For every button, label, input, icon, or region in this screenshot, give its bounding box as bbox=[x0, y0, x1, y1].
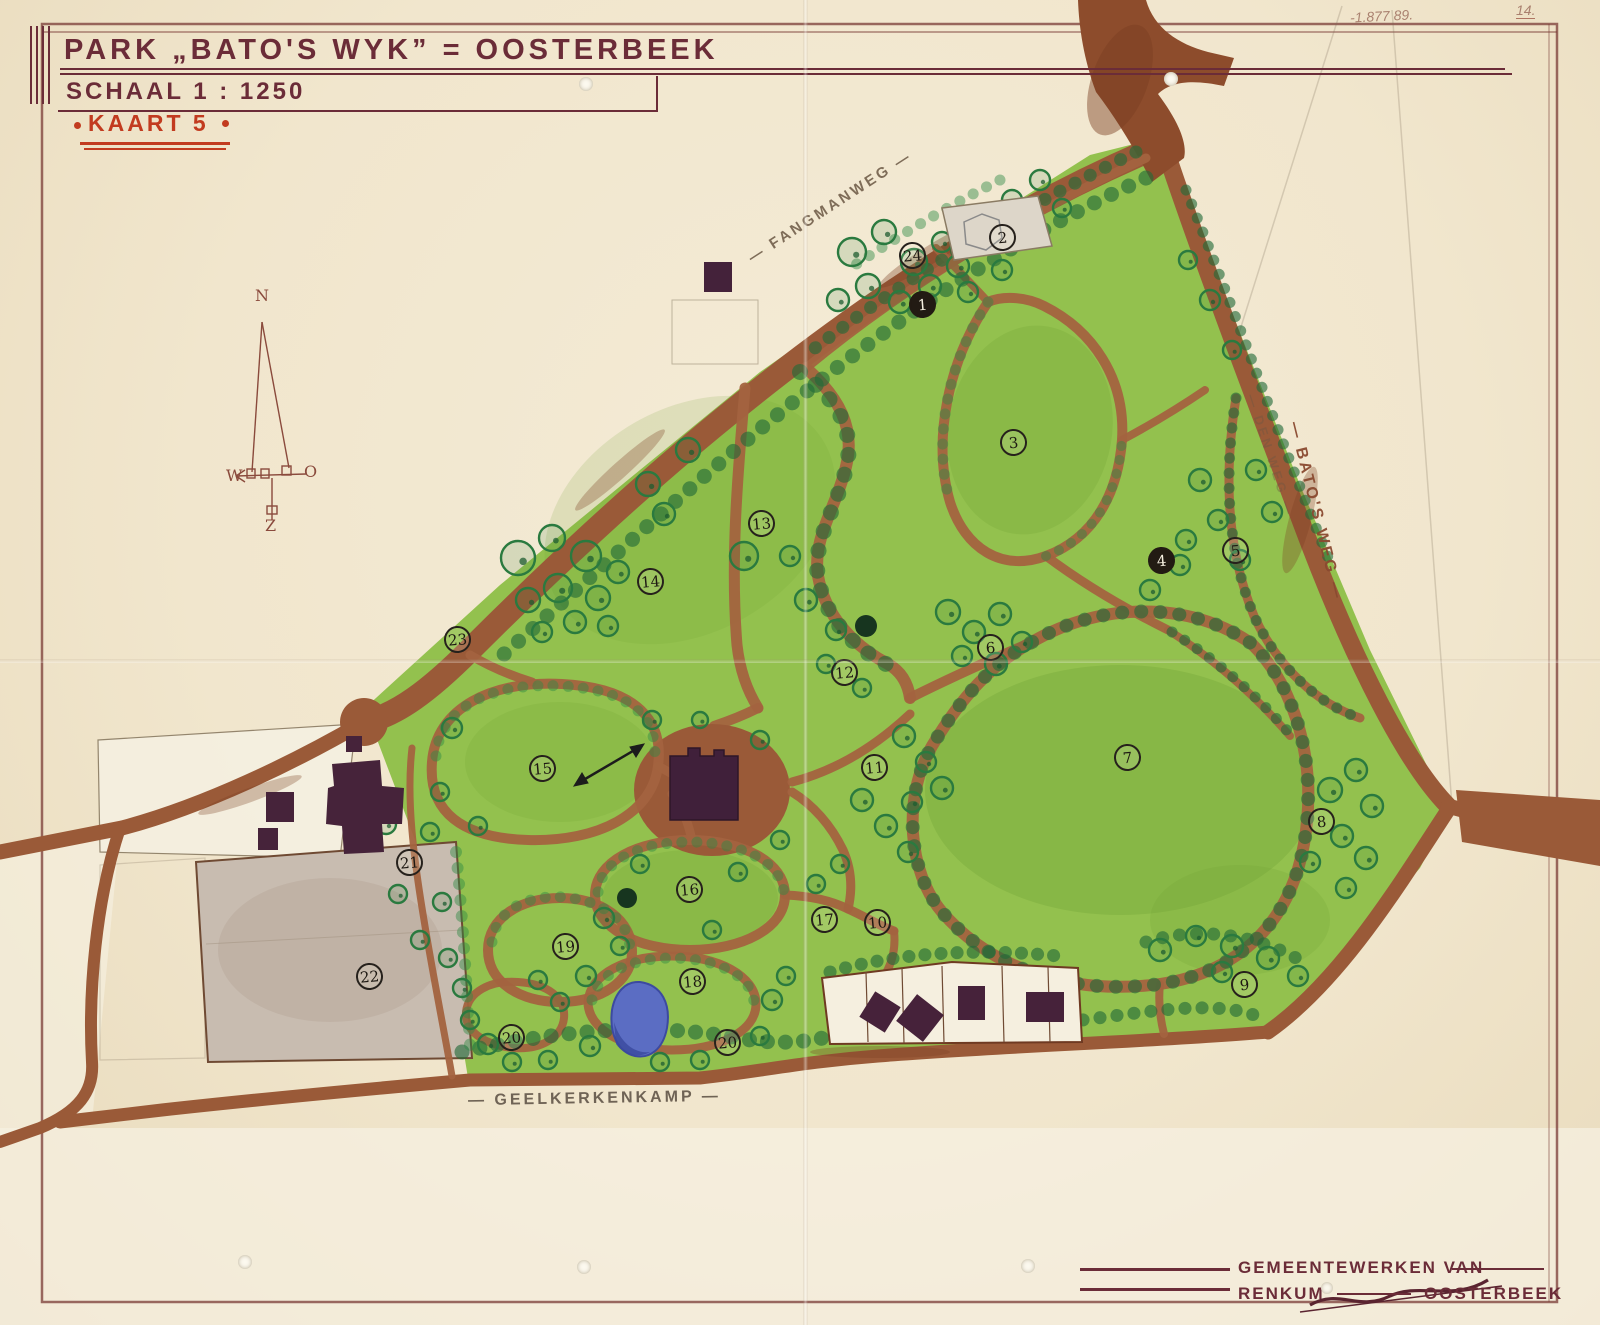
central-pavilion bbox=[670, 748, 738, 820]
sheet-number-stamp: KAART 5 bbox=[88, 110, 209, 137]
punch-hole bbox=[577, 1260, 591, 1274]
credit-oosterbeek: OOSTERBEEK bbox=[1424, 1284, 1563, 1303]
pond bbox=[611, 982, 667, 1057]
stamp-rule-1 bbox=[80, 142, 230, 145]
credit-renkum: RENKUM bbox=[1238, 1284, 1325, 1303]
credit-rule-2 bbox=[1080, 1288, 1230, 1291]
horizontal-fold-line bbox=[0, 659, 1600, 663]
punch-hole bbox=[1021, 1259, 1035, 1273]
punch-hole bbox=[1164, 72, 1178, 86]
credit-line2: RENKUM OOSTERBEEK bbox=[1238, 1284, 1563, 1304]
title-rule-2 bbox=[60, 73, 1512, 75]
stamp-dot-left bbox=[74, 122, 81, 129]
compass-w: W bbox=[226, 466, 242, 485]
compass-z: Z bbox=[265, 516, 276, 535]
stamp-dot-right bbox=[222, 120, 229, 127]
pencil-page-number: 14. bbox=[1516, 2, 1535, 19]
scanned-park-map: PARK „BATO'S WYK” = OOSTERBEEK SCHAAL 1 … bbox=[0, 0, 1600, 1325]
compass-rose bbox=[236, 322, 306, 520]
credit-rule-1 bbox=[1080, 1268, 1230, 1271]
punch-hole bbox=[579, 77, 593, 91]
title-hatch-ornament bbox=[30, 26, 52, 104]
credit-block: GEMEENTEWERKEN VAN RENKUM OOSTERBEEK bbox=[1238, 1258, 1563, 1304]
credit-rule-3 bbox=[1452, 1268, 1544, 1270]
stamp-rule-2 bbox=[84, 148, 226, 150]
compass-n: N bbox=[255, 286, 269, 305]
title-rule bbox=[60, 68, 1505, 70]
scale-rule-tick bbox=[656, 76, 658, 112]
punch-hole bbox=[238, 1255, 252, 1269]
scale-label: SCHAAL 1 : 1250 bbox=[66, 78, 305, 106]
punch-hole bbox=[1321, 1282, 1333, 1294]
pencil-inventory-note: -1.877 89. bbox=[1350, 6, 1414, 25]
compass-o: O bbox=[304, 462, 317, 481]
map-title: PARK „BATO'S WYK” = OOSTERBEEK bbox=[64, 34, 719, 67]
